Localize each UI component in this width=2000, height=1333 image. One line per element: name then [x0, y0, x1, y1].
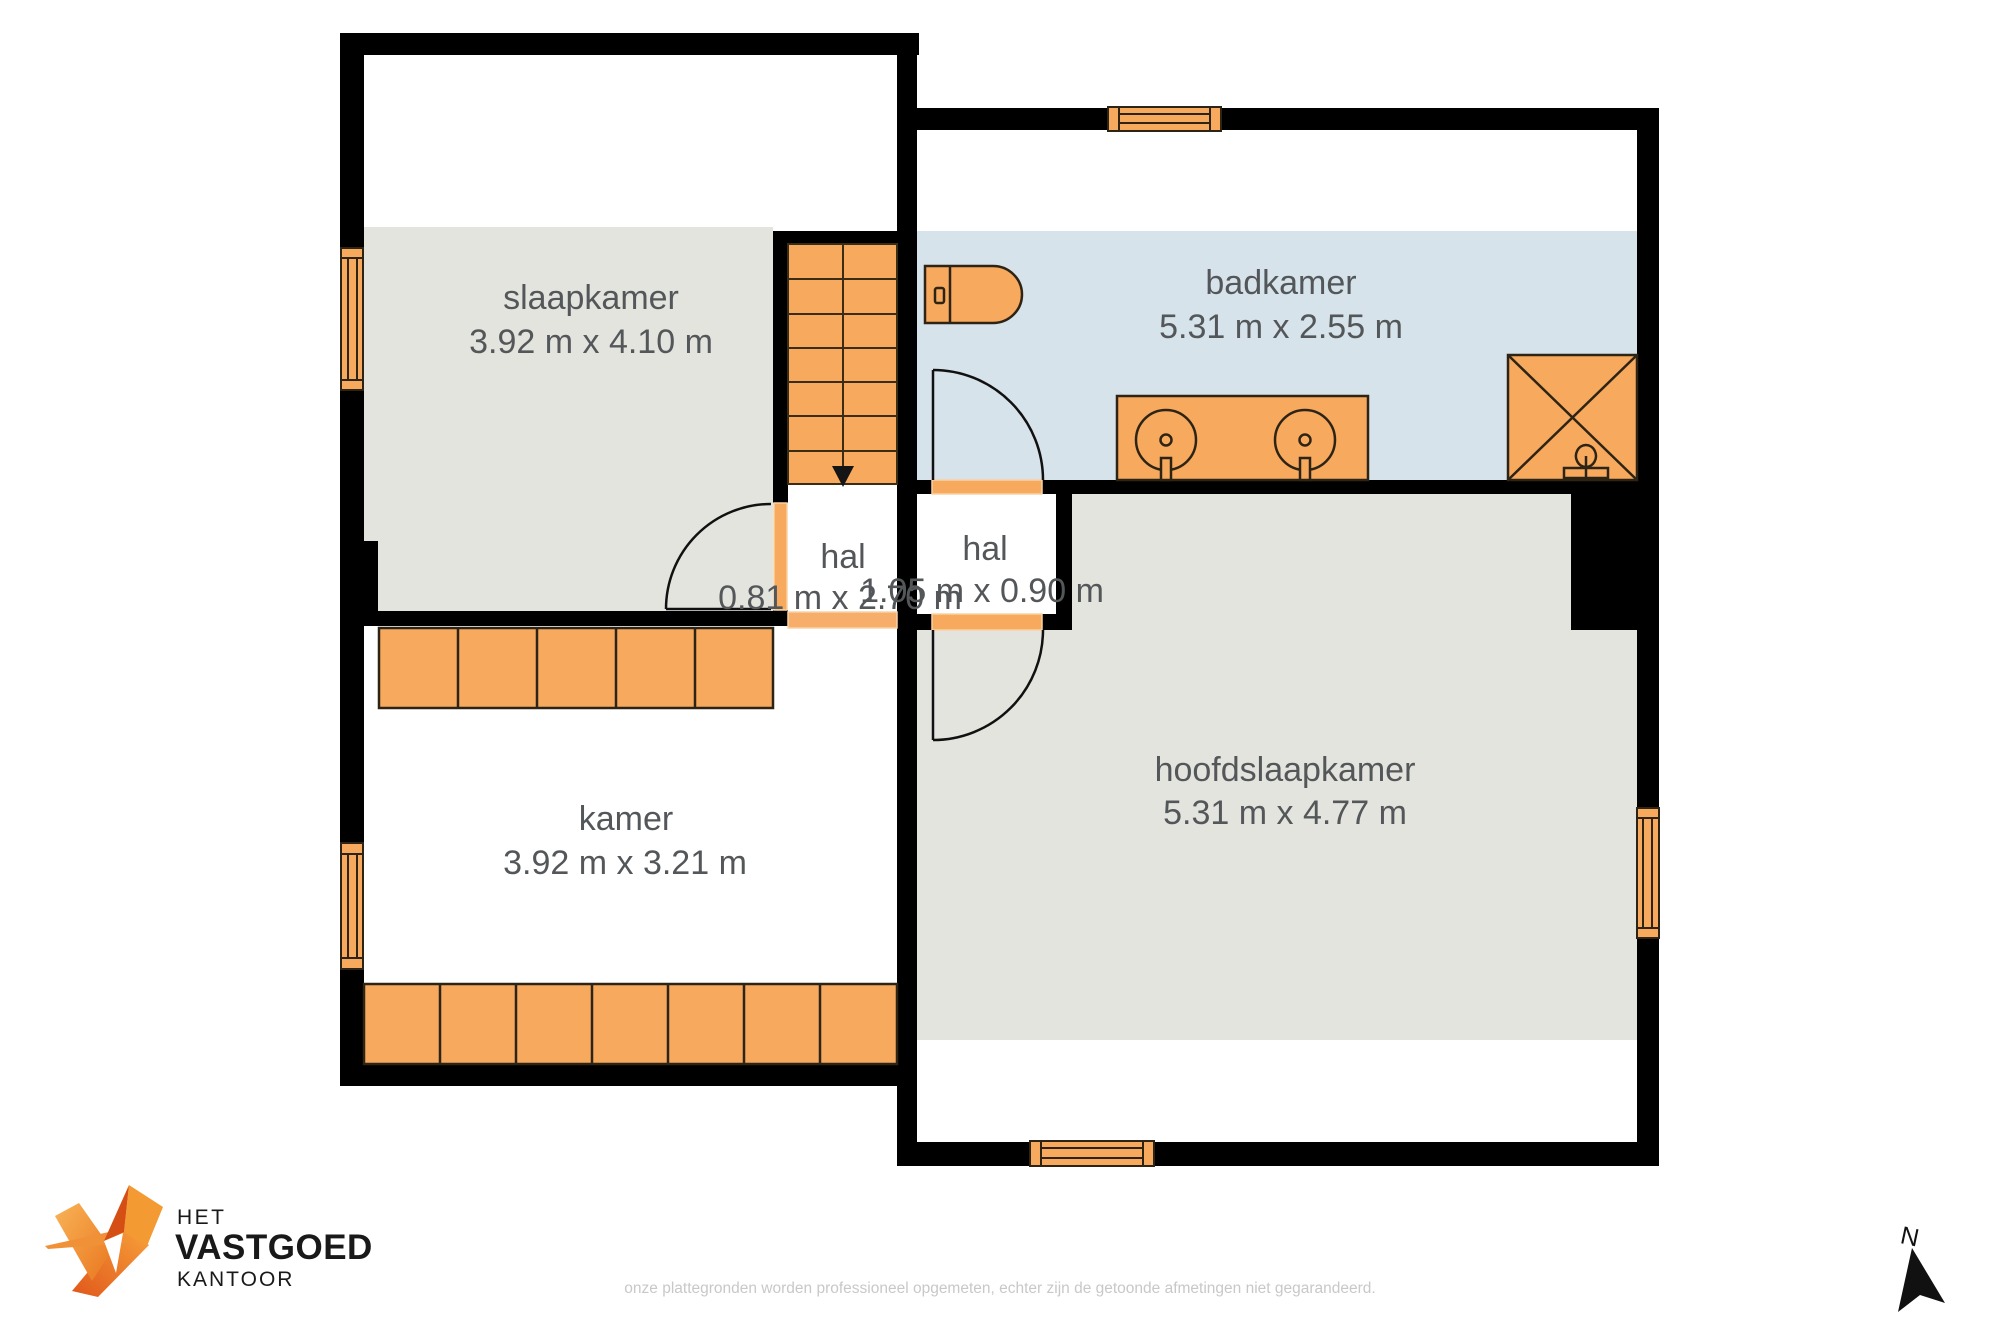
- svg-text:N: N: [1898, 1221, 1921, 1252]
- svg-text:onze plattegronden worden prof: onze plattegronden worden professioneel …: [624, 1280, 1375, 1297]
- svg-text:hal: hal: [962, 530, 1007, 568]
- svg-text:1.05 m x 0.90 m: 1.05 m x 0.90 m: [860, 572, 1104, 610]
- svg-text:slaapkamer: slaapkamer: [503, 279, 679, 317]
- svg-text:hoofdslaapkamer: hoofdslaapkamer: [1155, 751, 1416, 789]
- svg-text:hal: hal: [820, 538, 865, 576]
- svg-text:3.92 m x 3.21 m: 3.92 m x 3.21 m: [503, 844, 747, 882]
- svg-text:3.92 m x 4.10 m: 3.92 m x 4.10 m: [469, 323, 713, 361]
- svg-text:VASTGOED: VASTGOED: [175, 1228, 373, 1267]
- svg-text:kamer: kamer: [579, 800, 673, 838]
- svg-text:badkamer: badkamer: [1205, 264, 1356, 302]
- svg-text:5.31 m x 4.77 m: 5.31 m x 4.77 m: [1163, 794, 1407, 832]
- svg-text:KANTOOR: KANTOOR: [177, 1268, 294, 1291]
- svg-text:HET: HET: [177, 1206, 227, 1229]
- svg-text:5.31 m x 2.55 m: 5.31 m x 2.55 m: [1159, 308, 1403, 346]
